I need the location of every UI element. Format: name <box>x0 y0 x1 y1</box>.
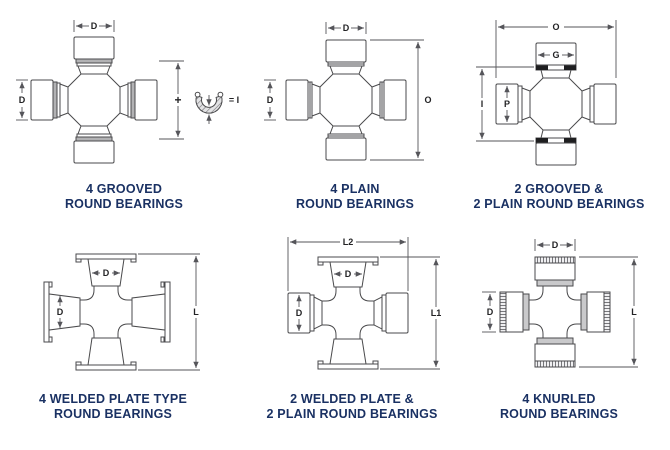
dim-top-cap-diameter: D <box>326 22 366 34</box>
caption-line-2: ROUND BEARINGS <box>8 407 218 422</box>
bottom-plain-bearing <box>326 126 366 160</box>
dim-label-l1: L1 <box>431 308 442 318</box>
caption-line-2: 2 PLAIN ROUND BEARINGS <box>452 197 666 212</box>
cross-body <box>320 74 372 126</box>
dim-label-top-d: D <box>345 269 352 279</box>
dim-left-cap-diameter: D <box>482 292 496 332</box>
ujoint-drawing-4-grooved: D D + = I <box>4 14 244 180</box>
diagram-4-grooved: D D + = I 4 GROOVED ROUND BEARINGS <box>4 14 244 212</box>
ujoint-drawing-4-welded: D D L <box>8 232 218 390</box>
left-plain-bearing <box>496 84 530 124</box>
top-grooved-bearing <box>74 37 114 74</box>
dim-top-cap-diameter: D <box>535 239 575 251</box>
bottom-knurled-bearing <box>535 338 575 367</box>
caption-line-1: 2 GROOVED & <box>452 182 666 197</box>
ujoint-drawing-2-welded-2-plain: L2 D D L1 <box>244 232 460 390</box>
dim-left-cap-diameter: D <box>16 80 28 120</box>
bottom-grooved-bearing <box>74 126 114 163</box>
right-knurled-bearing <box>581 292 610 332</box>
dim-label-top-d: D <box>103 268 110 278</box>
caption-line-1: 4 WELDED PLATE TYPE <box>8 392 218 407</box>
dim-label-o: O <box>552 22 559 32</box>
top-grooved-snap-bearing <box>536 43 576 78</box>
caption-line-1: 4 GROOVED <box>4 182 244 197</box>
dim-label-l: L <box>631 307 637 317</box>
diagram-4-plain: D D O 4 PLAIN ROUND BEARINGS <box>250 14 460 212</box>
dim-label-top-d: D <box>552 240 559 250</box>
dim-label-l2: L2 <box>343 237 354 247</box>
right-grooved-bearing <box>120 80 157 120</box>
caption-4-plain: 4 PLAIN ROUND BEARINGS <box>250 182 460 212</box>
left-plain-bearing <box>288 293 322 333</box>
snap-ring-glyph: = I <box>195 92 239 124</box>
dim-label-p: P <box>504 99 510 109</box>
dim-label-left-d: D <box>19 95 26 105</box>
dim-label-left-d: D <box>267 95 274 105</box>
dim-label-left-d: D <box>487 307 494 317</box>
caption-4-knurled: 4 KNURLED ROUND BEARINGS <box>452 392 666 422</box>
dim-label-l: L <box>193 307 199 317</box>
diagram-4-knurled: D D L 4 KNURLED ROUND BEARINGS <box>452 232 666 422</box>
caption-line-1: 4 KNURLED <box>452 392 666 407</box>
top-knurled-bearing <box>535 257 575 286</box>
caption-line-2: 2 PLAIN ROUND BEARINGS <box>244 407 460 422</box>
dim-label-plus: + <box>174 93 181 107</box>
left-knurled-bearing <box>500 292 529 332</box>
dim-left-cap-diameter: D <box>264 80 276 120</box>
ujoint-drawing-2-grooved-2-plain: O G I P <box>452 14 666 180</box>
dim-label-top-d: D <box>91 21 98 31</box>
ujoint-drawing-4-knurled: D D L <box>452 232 666 390</box>
cross-body <box>322 287 374 339</box>
caption-2-welded-2-plain: 2 WELDED PLATE & 2 PLAIN ROUND BEARINGS <box>244 392 460 422</box>
right-plain-bearing <box>582 84 616 124</box>
dim-label-top-d: D <box>343 23 350 33</box>
caption-line-2: ROUND BEARINGS <box>4 197 244 212</box>
cross-body <box>68 74 120 126</box>
caption-4-welded-plate: 4 WELDED PLATE TYPE ROUND BEARINGS <box>8 392 218 422</box>
caption-line-2: ROUND BEARINGS <box>452 407 666 422</box>
bottom-grooved-snap-bearing <box>536 130 576 165</box>
dim-label-left-d: D <box>296 308 303 318</box>
dim-label-ring-equals-i: = I <box>229 95 239 105</box>
left-plain-bearing <box>286 80 320 120</box>
cross-body <box>530 78 582 130</box>
caption-line-1: 2 WELDED PLATE & <box>244 392 460 407</box>
caption-line-1: 4 PLAIN <box>250 182 460 197</box>
diagram-2-grooved-2-plain: O G I P 2 GROOVED & 2 PLAIN ROUND BEARIN… <box>452 14 666 212</box>
bottom-welded-plate-bearing <box>76 338 136 370</box>
dim-top-cap-diameter: D <box>74 20 114 32</box>
dim-label-g: G <box>552 50 559 60</box>
bearing-types-diagram-page: D D + = I 4 GROOVED ROUND BEARINGS <box>0 0 670 450</box>
cross-body <box>80 286 132 338</box>
right-plain-bearing <box>372 80 406 120</box>
caption-line-2: ROUND BEARINGS <box>250 197 460 212</box>
left-grooved-bearing <box>31 80 68 120</box>
dim-label-i: I <box>481 99 484 109</box>
ujoint-drawing-4-plain: D D O <box>250 14 460 180</box>
caption-4-grooved: 4 GROOVED ROUND BEARINGS <box>4 182 244 212</box>
dim-label-o: O <box>424 95 431 105</box>
right-welded-plate-bearing <box>132 282 170 342</box>
cross-body <box>529 286 581 338</box>
dim-label-left-d: D <box>57 307 64 317</box>
right-plain-bearing <box>374 293 408 333</box>
bottom-welded-plate-bearing <box>318 339 378 369</box>
diagram-4-welded-plate: D D L 4 WELDED PLATE TYPE ROUND BEARINGS <box>8 232 218 422</box>
caption-2-grooved-2-plain: 2 GROOVED & 2 PLAIN ROUND BEARINGS <box>452 182 666 212</box>
dim-span-plus-ring: + <box>159 61 184 139</box>
top-plain-bearing <box>326 40 366 74</box>
diagram-2-welded-2-plain: L2 D D L1 2 WELDED PLATE & 2 PLAIN ROUND… <box>244 232 460 422</box>
